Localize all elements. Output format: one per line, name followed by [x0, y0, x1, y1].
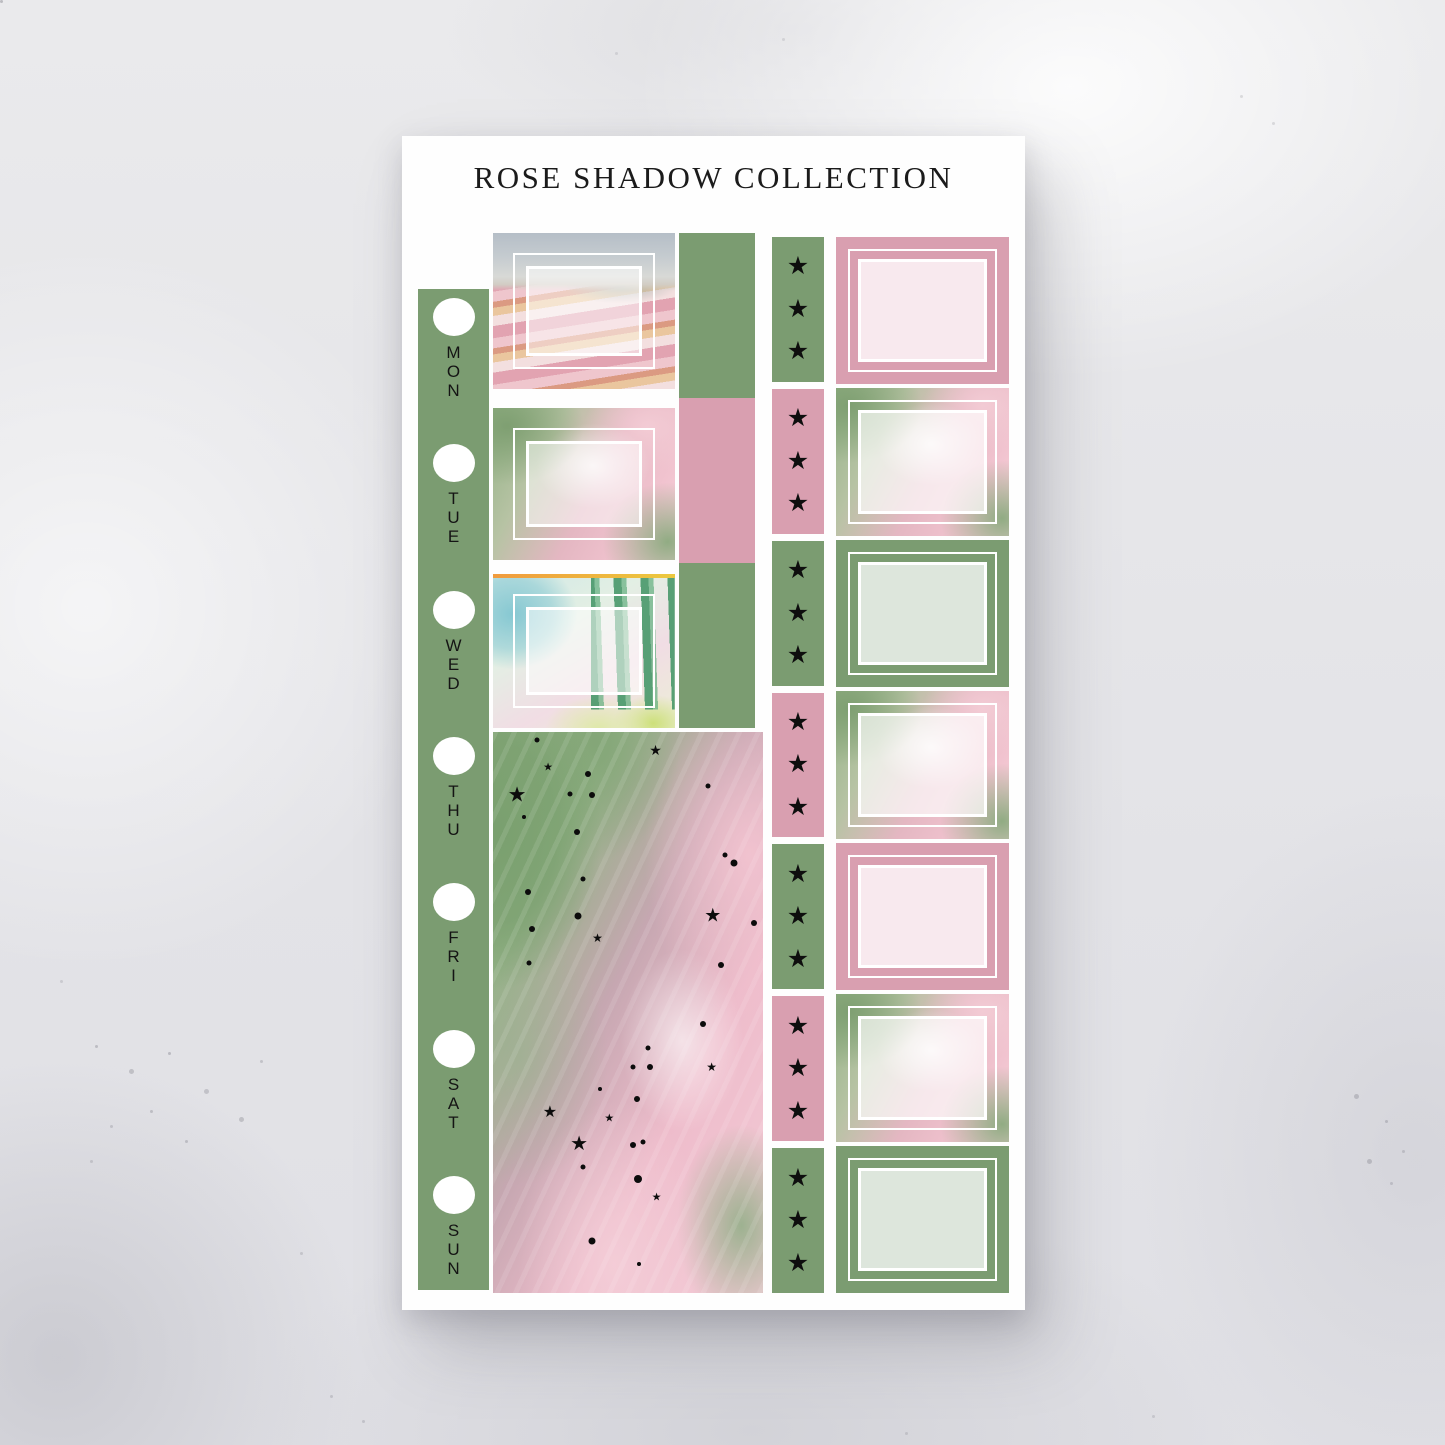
- star-icon: ★: [787, 795, 809, 820]
- star-icon: ★: [787, 449, 809, 474]
- star-icon: ★: [787, 1014, 809, 1039]
- star-icon: ★: [787, 254, 809, 279]
- day-label: TUE: [447, 489, 459, 546]
- star-icon: ★: [787, 947, 809, 972]
- day-label: SAT: [448, 1075, 459, 1132]
- punch-hole-circle: [433, 591, 475, 629]
- dot-mark: [581, 1164, 586, 1169]
- day-letter: N: [447, 381, 459, 400]
- star-icon: ★: [787, 904, 809, 929]
- star-icon: ★: [604, 1114, 614, 1125]
- star-icon: ★: [787, 601, 809, 626]
- dot-mark: [722, 852, 727, 857]
- star-segment-green: ★★★: [772, 844, 824, 989]
- star-icon: ★: [787, 1056, 809, 1081]
- dot-mark: [645, 1045, 650, 1050]
- star-icon: ★: [787, 297, 809, 322]
- day-letter: H: [447, 801, 459, 820]
- paint-sticker-box: [493, 408, 675, 560]
- day-unit: SUN: [418, 1176, 489, 1278]
- star-segment-pink: ★★★: [772, 693, 824, 838]
- dot-mark: [529, 926, 535, 932]
- day-letter: U: [447, 1240, 459, 1259]
- frame-panel: [858, 713, 987, 816]
- star-icon: ★: [787, 862, 809, 887]
- punch-hole-circle: [433, 1176, 475, 1214]
- framed-box-paint: [836, 994, 1009, 1141]
- day-unit: MON: [418, 298, 489, 400]
- frame-panel: [526, 607, 642, 695]
- day-letter: N: [447, 1259, 459, 1278]
- dot-mark: [751, 920, 757, 926]
- day-letter: F: [448, 928, 458, 947]
- star-icon: ★: [704, 907, 721, 926]
- day-unit: WED: [418, 591, 489, 693]
- day-letter: T: [448, 1113, 458, 1132]
- dot-mark: [730, 859, 737, 866]
- day-letter: A: [448, 1094, 459, 1113]
- star-segment-pink: ★★★: [772, 996, 824, 1141]
- sticker-sheet: ROSE SHADOW COLLECTION MONTUEWEDTHUFRISA…: [402, 136, 1025, 1310]
- day-label: FRI: [447, 928, 459, 985]
- marble-speckles: [0, 0, 3, 3]
- solid-rect-green: [679, 233, 755, 398]
- day-letter: E: [448, 655, 459, 674]
- punch-hole-circle: [433, 444, 475, 482]
- constellation-paint-box: ★★★★★★★★★★: [493, 732, 763, 1293]
- star-segment-green: ★★★: [772, 1148, 824, 1293]
- framed-box-column: [836, 237, 1009, 1293]
- frame-panel: [858, 259, 987, 362]
- dot-mark: [574, 829, 580, 835]
- day-letter: M: [446, 343, 460, 362]
- flower-field-sticker-box: [493, 233, 675, 389]
- dot-mark: [581, 876, 586, 881]
- day-letter: D: [447, 674, 459, 693]
- dot-mark: [718, 962, 724, 968]
- frame-panel: [526, 441, 642, 527]
- star-icon: ★: [787, 339, 809, 364]
- day-letter: U: [447, 820, 459, 839]
- day-letter: S: [448, 1221, 459, 1240]
- star-icon: ★: [787, 1251, 809, 1276]
- frame-panel: [526, 266, 642, 356]
- dot-mark: [568, 791, 573, 796]
- punch-hole-circle: [433, 883, 475, 921]
- framed-box-paint: [836, 388, 1009, 535]
- day-letter: R: [447, 947, 459, 966]
- star-segment-pink: ★★★: [772, 389, 824, 534]
- dot-mark: [589, 1237, 596, 1244]
- frame-panel: [858, 562, 987, 665]
- marble-background: ROSE SHADOW COLLECTION MONTUEWEDTHUFRISA…: [0, 0, 1445, 1445]
- star-icon: ★: [508, 784, 527, 805]
- dot-mark: [630, 1142, 636, 1148]
- punch-hole-circle: [433, 737, 475, 775]
- date-cover-strip: MONTUEWEDTHUFRISATSUN: [418, 289, 489, 1290]
- day-letter: T: [448, 489, 458, 508]
- frame-panel: [858, 1016, 987, 1119]
- star-segment-green: ★★★: [772, 237, 824, 382]
- day-unit: TUE: [418, 444, 489, 546]
- day-unit: THU: [418, 737, 489, 839]
- dot-mark: [525, 889, 531, 895]
- dot-mark: [705, 783, 710, 788]
- dot-mark: [634, 1096, 640, 1102]
- solid-rect-pink: [679, 398, 755, 563]
- dot-mark: [535, 737, 540, 742]
- punch-hole-circle: [433, 298, 475, 336]
- solid-rect-column: [679, 233, 755, 728]
- dot-mark: [526, 961, 531, 966]
- star-icon: ★: [706, 1061, 717, 1073]
- star-icon: ★: [592, 932, 603, 944]
- day-label: MON: [446, 343, 460, 400]
- day-letter: O: [447, 362, 460, 381]
- star-icon: ★: [787, 1099, 809, 1124]
- day-label: THU: [447, 782, 459, 839]
- star-icon: ★: [787, 406, 809, 431]
- day-letter: E: [448, 527, 459, 546]
- star-icon: ★: [652, 1192, 662, 1203]
- framed-box-pink: [836, 843, 1009, 990]
- star-checklist-strip: ★★★★★★★★★★★★★★★★★★★★★: [772, 237, 824, 1293]
- dot-mark: [634, 1175, 642, 1183]
- solid-rect-green: [679, 563, 755, 728]
- day-letter: W: [445, 636, 461, 655]
- day-label: WED: [445, 636, 461, 693]
- star-icon: ★: [787, 752, 809, 777]
- star-icon: ★: [787, 643, 809, 668]
- dot-mark: [598, 1087, 602, 1091]
- dot-mark: [522, 815, 526, 819]
- star-segment-green: ★★★: [772, 541, 824, 686]
- star-icon: ★: [543, 763, 553, 774]
- dot-mark: [585, 771, 591, 777]
- star-icon: ★: [787, 558, 809, 583]
- dot-mark: [637, 1262, 641, 1266]
- day-unit: FRI: [418, 883, 489, 985]
- star-icon: ★: [543, 1105, 557, 1121]
- dot-mark: [640, 1140, 645, 1145]
- dot-mark: [700, 1021, 706, 1027]
- day-label: SUN: [447, 1221, 459, 1278]
- day-letter: I: [451, 966, 456, 985]
- day-letter: S: [448, 1075, 459, 1094]
- frame-panel: [858, 410, 987, 513]
- dot-mark: [647, 1064, 653, 1070]
- star-icon: ★: [787, 491, 809, 516]
- spires-sticker-box: [493, 574, 675, 728]
- frame-panel: [858, 1168, 987, 1271]
- frame-panel: [858, 865, 987, 968]
- star-icon: ★: [649, 743, 662, 757]
- day-letter: T: [448, 782, 458, 801]
- framed-box-paint: [836, 691, 1009, 838]
- star-icon: ★: [570, 1134, 588, 1154]
- framed-box-green: [836, 1146, 1009, 1293]
- framed-box-green: [836, 540, 1009, 687]
- dot-mark: [575, 913, 582, 920]
- star-icon: ★: [787, 1208, 809, 1233]
- day-letter: U: [447, 508, 459, 527]
- dot-mark: [630, 1064, 635, 1069]
- day-unit: SAT: [418, 1030, 489, 1132]
- star-icon: ★: [787, 1166, 809, 1191]
- dot-mark: [589, 792, 595, 798]
- star-icon: ★: [787, 710, 809, 735]
- punch-hole-circle: [433, 1030, 475, 1068]
- framed-box-pink: [836, 237, 1009, 384]
- sheet-title: ROSE SHADOW COLLECTION: [402, 160, 1025, 196]
